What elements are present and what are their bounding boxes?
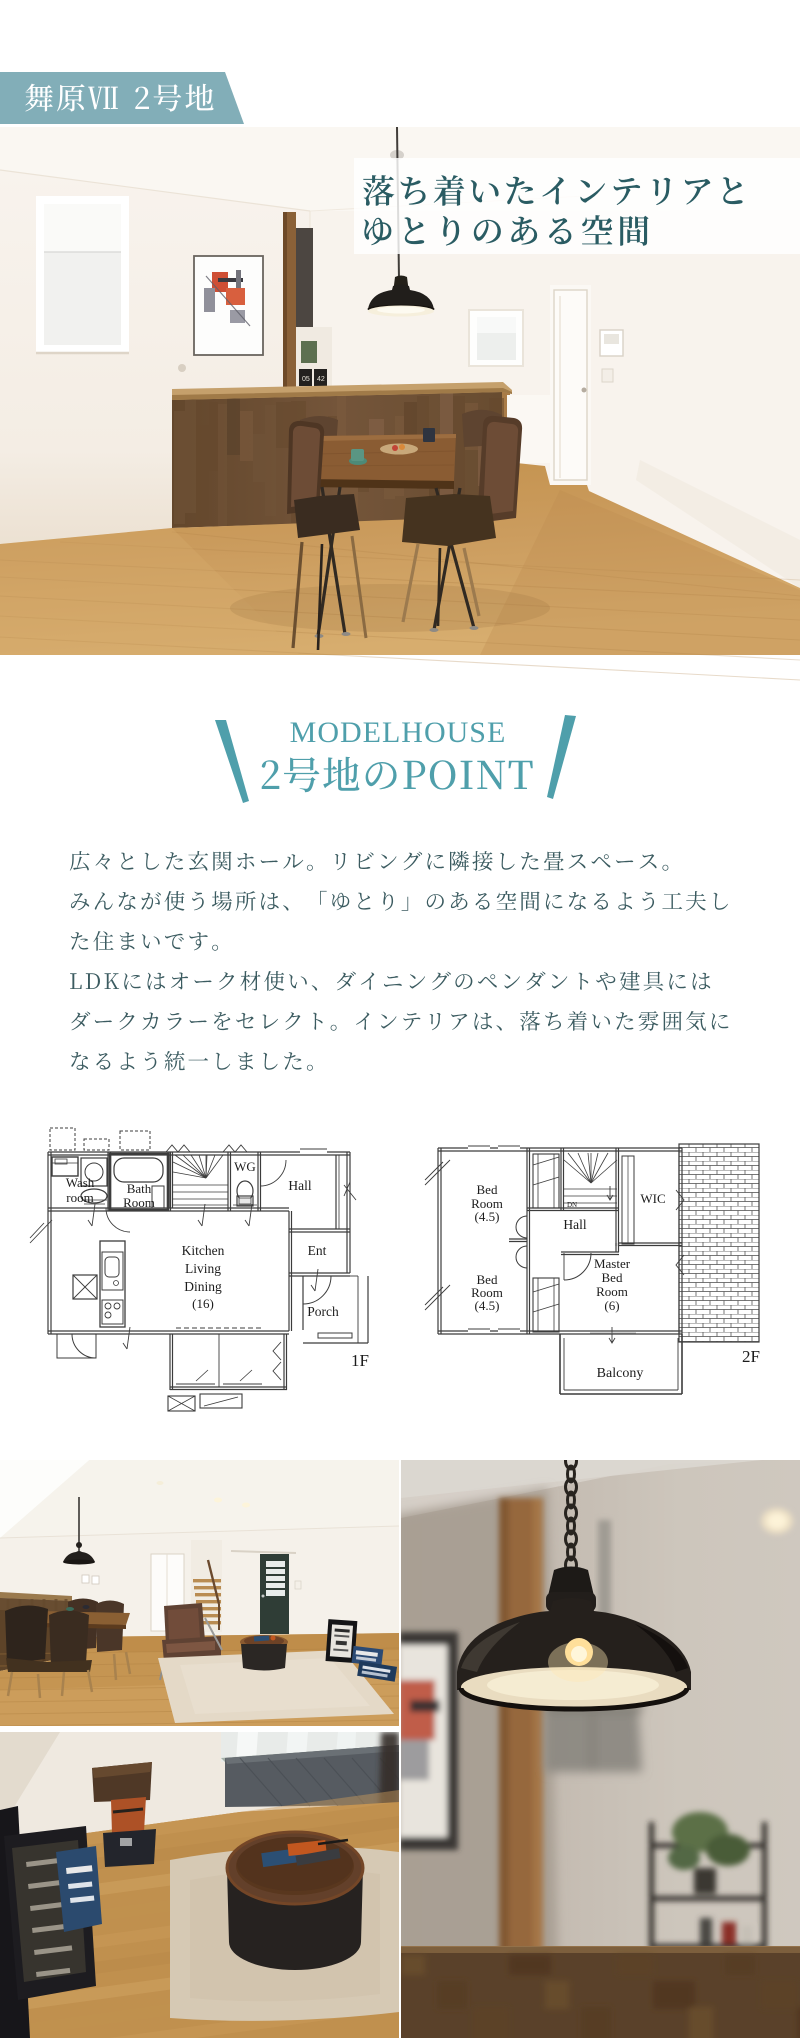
- svg-text:Bath: Bath: [127, 1181, 152, 1196]
- svg-text:(16): (16): [192, 1296, 214, 1311]
- svg-text:WIC: WIC: [640, 1191, 665, 1206]
- svg-text:Hall: Hall: [563, 1217, 586, 1232]
- svg-text:Ent: Ent: [308, 1243, 327, 1258]
- svg-text:2F: 2F: [742, 1347, 760, 1366]
- svg-text:Bed: Bed: [477, 1182, 498, 1197]
- svg-text:Master: Master: [594, 1256, 631, 1271]
- svg-text:(4.5): (4.5): [475, 1209, 500, 1224]
- svg-text:Living: Living: [185, 1261, 221, 1276]
- svg-text:Balcony: Balcony: [597, 1366, 644, 1381]
- svg-text:05: 05: [302, 376, 310, 383]
- svg-text:Wash: Wash: [66, 1175, 95, 1190]
- svg-text:Dining: Dining: [184, 1279, 222, 1294]
- svg-text:WG: WG: [234, 1159, 256, 1174]
- svg-text:MODELHOUSE: MODELHOUSE: [290, 716, 507, 749]
- svg-text:42: 42: [317, 376, 325, 383]
- svg-text:Porch: Porch: [307, 1304, 339, 1319]
- svg-text:Room: Room: [596, 1284, 628, 1299]
- svg-text:room: room: [66, 1190, 93, 1205]
- svg-text:Hall: Hall: [288, 1178, 311, 1193]
- svg-text:(6): (6): [604, 1298, 619, 1313]
- svg-text:Kitchen: Kitchen: [182, 1243, 225, 1258]
- svg-text:Room: Room: [123, 1195, 155, 1210]
- svg-text:Bed: Bed: [602, 1270, 623, 1285]
- svg-text:DN: DN: [567, 1201, 577, 1209]
- svg-text:1F: 1F: [351, 1351, 369, 1370]
- svg-text:(4.5): (4.5): [475, 1298, 500, 1313]
